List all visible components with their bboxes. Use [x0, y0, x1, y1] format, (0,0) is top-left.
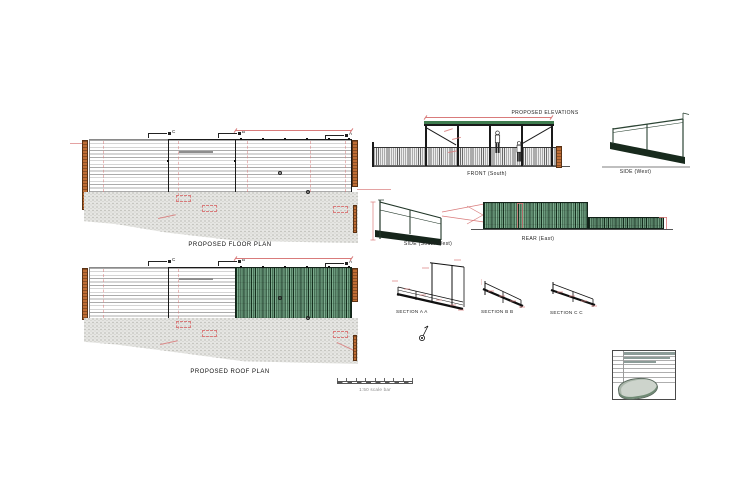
front-dimension-line	[425, 117, 552, 118]
front-brace-right	[521, 126, 552, 145]
drainage-symbol-icon	[278, 296, 282, 300]
person-figure	[514, 141, 524, 163]
title-block	[612, 350, 676, 400]
marker-line	[148, 261, 167, 262]
section-c-label: SECTION C C	[550, 310, 596, 315]
marker-tick	[325, 263, 326, 268]
scale-bar-caption: 1:50 scale bar	[337, 387, 413, 392]
section-a-label: SECTION A A	[396, 309, 442, 314]
floor-beam-mark	[179, 151, 213, 153]
title-block-row-line	[613, 372, 675, 373]
floor-timber-edge-right	[352, 140, 358, 187]
post-dot	[167, 160, 169, 162]
marker-tick	[148, 261, 149, 266]
title-block-row-line	[613, 364, 675, 365]
rear-red-tick	[659, 217, 667, 218]
side-west-label: SIDE (West)	[608, 169, 663, 175]
marker-line	[325, 263, 344, 264]
post-dot	[306, 266, 308, 268]
floor-red-detail-tag	[333, 206, 348, 213]
rear-red-tick	[666, 217, 667, 229]
scale-bar-strip	[337, 381, 413, 384]
floor-centerline	[178, 141, 179, 201]
rear-elevation-label: REAR (East)	[508, 236, 568, 242]
roof-red-detail-tag	[333, 331, 348, 338]
side-south-west-label: SIDE (South-West)	[396, 241, 460, 247]
roof-dimension-line	[235, 258, 352, 259]
floor-red-detail-tag	[176, 195, 191, 202]
person-figure	[492, 130, 503, 155]
ground-line	[372, 166, 570, 167]
roof-timber-edge-left	[82, 268, 88, 320]
front-end-post-left	[372, 142, 374, 167]
floor-timber-apron-right	[353, 205, 357, 233]
section-flag-icon	[345, 134, 348, 137]
roof-beam-mark	[179, 278, 213, 280]
roof-plan-title: PROPOSED ROOF PLAN	[160, 369, 300, 375]
roof-red-detail-tag	[202, 330, 217, 337]
marker-letter: C	[172, 129, 175, 134]
roof-section-marker-c: C	[148, 257, 178, 267]
marker-letter: C	[172, 257, 175, 262]
marker-tick	[148, 133, 149, 138]
post-dot	[234, 160, 236, 162]
title-block-filled-cell	[624, 357, 670, 360]
section-flag-icon	[168, 260, 171, 263]
rear-red-leaders	[466, 203, 486, 227]
side-west-drawing	[598, 110, 698, 172]
post-dot	[284, 266, 286, 268]
post-dot	[240, 266, 242, 268]
drainage-symbol-icon	[278, 171, 282, 175]
rear-red-dimension	[517, 203, 523, 204]
section-flag-icon	[238, 132, 241, 135]
section-b-drawing	[481, 277, 529, 313]
drawing-sheet: C B A	[0, 0, 752, 501]
rear-red-dimension	[517, 203, 518, 228]
post-dot	[348, 138, 350, 140]
floor-concrete-apron	[84, 192, 358, 244]
section-flag-icon	[168, 132, 171, 135]
roof-red-detail-tag	[176, 321, 191, 328]
front-elevation-label: FRONT (South)	[452, 171, 522, 177]
floor-centerline	[247, 141, 248, 192]
section-flag-icon	[345, 262, 348, 265]
title-block-filled-cell	[624, 361, 656, 364]
elevations-title: PROPOSED ELEVATIONS	[505, 110, 585, 116]
title-block-filled-cell	[624, 352, 675, 355]
roof-centerline	[178, 269, 179, 329]
floor-plan-title: PROPOSED FLOOR PLAN	[160, 242, 300, 248]
front-end-post-right	[556, 146, 562, 168]
drainage-symbol-icon	[306, 316, 310, 320]
floor-centerline	[310, 141, 311, 192]
post-dot	[348, 266, 350, 268]
front-red-note	[444, 128, 453, 132]
post-dot	[306, 138, 308, 140]
roof-timber-edge-right	[352, 268, 358, 302]
marker-tick	[218, 261, 219, 266]
section-c-drawing	[548, 277, 602, 314]
drainage-symbol-icon	[306, 190, 310, 194]
post-dot	[284, 138, 286, 140]
north-arrow-icon	[416, 323, 432, 343]
roof-concrete-apron	[84, 318, 358, 364]
floor-red-leader-left	[70, 143, 82, 144]
ground-line	[471, 229, 673, 230]
front-column	[551, 126, 553, 166]
floor-centerline	[345, 141, 346, 192]
front-brace-left	[425, 127, 456, 146]
marker-line	[325, 135, 344, 136]
rear-wall-low	[588, 217, 664, 229]
front-column	[425, 126, 427, 166]
marker-tick	[325, 135, 326, 140]
floor-red-detail-tag	[202, 205, 217, 212]
floor-red-leader-right	[357, 189, 391, 190]
rear-wall-tall	[483, 202, 588, 229]
floor-dimension-line	[235, 130, 352, 131]
section-a-drawing	[392, 258, 472, 313]
floor-centerline	[103, 141, 104, 192]
front-wall-hatch	[374, 147, 556, 166]
marker-tick	[218, 133, 219, 138]
post-dot	[262, 138, 264, 140]
floor-deck-right	[235, 139, 352, 193]
marker-line	[148, 133, 167, 134]
section-flag-icon	[238, 260, 241, 263]
post-dot	[262, 266, 264, 268]
post-dot	[328, 266, 330, 268]
post-dot	[328, 138, 330, 140]
section-b-label: SECTION B B	[481, 309, 527, 314]
roof-timber-apron-right	[353, 335, 357, 361]
post-dot	[240, 138, 242, 140]
title-block-row-line	[613, 368, 675, 369]
roof-deck-left	[89, 267, 169, 319]
floor-section-marker-c: C	[148, 129, 178, 139]
rear-red-dimension	[522, 203, 523, 228]
front-column	[489, 126, 491, 166]
front-column	[457, 126, 459, 166]
roof-centerline	[103, 269, 104, 318]
floor-deck-left	[89, 139, 169, 193]
